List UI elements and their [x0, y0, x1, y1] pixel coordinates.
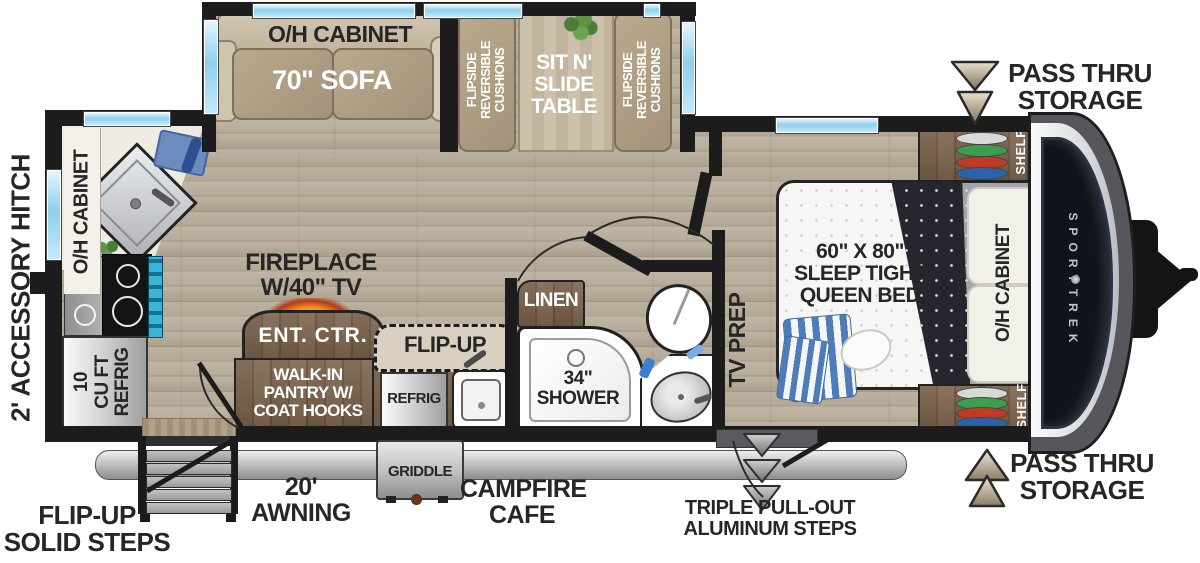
walk-in-pantry-label: WALK-IN PANTRY W/ COAT HOOKS	[236, 366, 380, 420]
shelf-bottom-label: SHELF	[1015, 383, 1029, 428]
griddle-knob	[411, 494, 422, 505]
griddle-foot	[438, 496, 448, 503]
step-tread	[146, 463, 232, 475]
flip-up-label: FLIP-UP	[377, 333, 513, 356]
refrigerator-label: 10 CU FT REFRIG	[72, 348, 134, 417]
outdoor-griddle: GRIDDLE	[376, 440, 464, 500]
toilet-lid-line	[673, 289, 691, 325]
brand-emblem	[1071, 275, 1080, 284]
cafe-refrigerator-label: REFRIG	[382, 391, 446, 407]
griddle-label: GRIDDLE	[378, 464, 462, 480]
bedroom-wall	[709, 126, 722, 176]
window	[776, 118, 878, 133]
triple-steps-label: TRIPLE PULL-OUT ALUMINUM STEPS	[672, 498, 868, 540]
burner	[112, 296, 143, 327]
spice-rack	[148, 256, 163, 338]
flip-up-counter: FLIP-UP	[374, 324, 516, 372]
flip-up-steps-label: FLIP-UP SOLID STEPS	[0, 502, 174, 557]
dinette-cushion-left-label: FLIPSIDE REVERSIBLE CUSHIONS	[465, 41, 507, 119]
dinette-cushion-right-label: FLIPSIDE REVERSIBLE CUSHIONS	[621, 41, 663, 119]
step-tread	[146, 489, 232, 501]
hanger-blue	[956, 167, 1008, 180]
shower-label: 34" SHOWER	[528, 369, 628, 409]
linen-label: LINEN	[519, 291, 583, 311]
window	[253, 4, 415, 18]
tv-prep-label: TV PREP	[725, 293, 749, 388]
step-platform	[138, 436, 238, 446]
shower: 34" SHOWER	[517, 326, 645, 434]
step-tread	[146, 476, 232, 488]
shelf-top-label: SHELF	[1014, 129, 1028, 174]
cafe-sink-basin	[461, 379, 501, 421]
vanity-drain	[677, 393, 685, 401]
sofa-oh-cabinet-label: O/H CABINET	[240, 22, 440, 46]
burner	[74, 304, 96, 326]
slide-divider-wall	[440, 2, 458, 152]
shower-drain	[567, 349, 585, 367]
window	[47, 170, 61, 260]
burner	[116, 264, 140, 288]
window	[204, 20, 218, 114]
bed-label: 60" X 80" SLEEP TIGHT QUEEN BED	[781, 241, 939, 307]
accessory-hitch-label: 2' ACCESSORY HITCH	[7, 154, 34, 422]
kitchen-oh-cabinet-label: O/H CABINET	[72, 150, 93, 275]
window	[424, 4, 522, 18]
griddle-foot	[386, 496, 396, 503]
floorplan: 10 CU FT REFRIG O/H CABINET FIREPLACE W/…	[0, 0, 1200, 563]
step-tread	[146, 450, 232, 462]
pass-thru-down-arrows-icon	[950, 60, 1000, 128]
window	[682, 22, 695, 114]
striped-towel	[776, 335, 830, 405]
awning-label: 20' AWNING	[245, 474, 357, 527]
window	[644, 4, 660, 17]
walk-in-pantry: WALK-IN PANTRY W/ COAT HOOKS	[234, 358, 382, 432]
entertainment-center-label: ENT. CTR.	[245, 325, 381, 347]
bathroom-left-wall	[505, 278, 517, 428]
dinette-table-label: SIT N' SLIDE TABLE	[520, 52, 608, 118]
pass-thru-top-label: PASS THRU STORAGE	[1002, 60, 1158, 115]
bedroom-oh-cabinet-label: O/H CABINET	[994, 224, 1014, 342]
window	[84, 112, 170, 126]
hitch-pin	[1178, 268, 1198, 281]
campfire-cafe-label: CAMPFIRE CAFE	[460, 476, 584, 529]
entertainment-center: ENT. CTR.	[242, 310, 384, 362]
pass-thru-bottom-label: PASS THRU STORAGE	[1004, 450, 1160, 505]
sofa-label: 70" SOFA	[242, 66, 422, 94]
cafe-sink-drain	[478, 402, 485, 409]
linen-closet: LINEN	[517, 280, 585, 328]
cafe-sink	[452, 370, 510, 430]
bathroom-top-wall	[643, 260, 715, 272]
fireplace-label: FIREPLACE W/40" TV	[225, 250, 397, 300]
step-foot	[226, 514, 236, 522]
cafe-refrigerator: REFRIG	[380, 372, 448, 430]
nose-cap: SPORTTREK	[1028, 112, 1136, 454]
